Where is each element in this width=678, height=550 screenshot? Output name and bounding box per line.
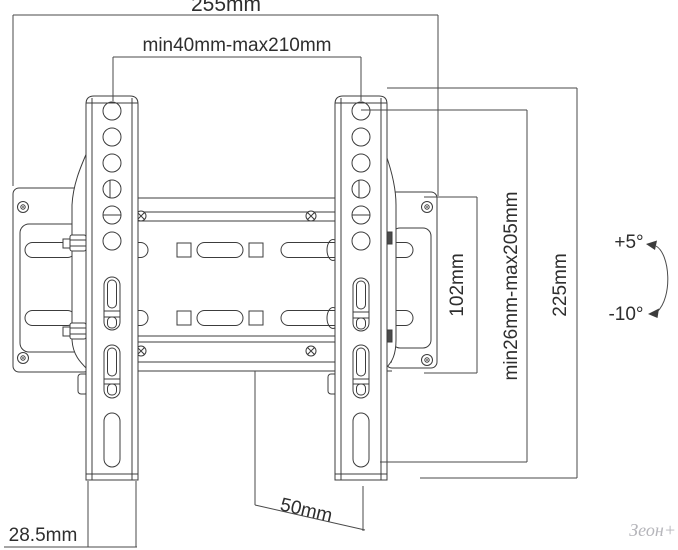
dim-hole-span-label: min40mm-max210mm	[143, 35, 332, 56]
phillips-screw	[306, 346, 316, 356]
tilt-indicator: +5° -10°	[608, 232, 667, 325]
dim-plate-height-label: 102mm	[447, 253, 468, 316]
dim-overall-width-label: 255mm	[191, 0, 261, 16]
right-bolt-tab	[387, 330, 392, 342]
wall-mount-dimension-diagram: 255mm min40mm-max210mm 102mm min26mm-max…	[0, 0, 678, 550]
dim-rail-width: 28.5mm	[4, 481, 137, 547]
plate-slot-row-lower	[112, 308, 348, 329]
plate-screws	[136, 211, 316, 356]
dim-bottom-offset-label: 50mm	[278, 494, 334, 526]
corner-screw	[422, 202, 433, 213]
mount-diagram-svg: 255mm min40mm-max210mm 102mm min26mm-max…	[0, 0, 678, 550]
right-rail	[335, 96, 387, 480]
tilt-up-label: +5°	[614, 232, 643, 253]
plate-slot-row-upper	[112, 240, 348, 261]
right-bolt-tab	[387, 232, 392, 244]
left-rail	[86, 96, 138, 480]
dim-bracket-height-label: 225mm	[550, 253, 571, 316]
watermark: Зеон+	[629, 520, 676, 540]
tilt-down-label: -10°	[608, 304, 643, 325]
phillips-screw	[306, 211, 316, 221]
corner-screw	[422, 355, 433, 366]
dim-plate-height: 102mm	[424, 197, 477, 373]
tilt-arrow-up	[646, 241, 657, 251]
dim-bracket-height: 225mm	[387, 88, 577, 478]
corner-screw	[18, 202, 29, 213]
dim-hole-span: min40mm-max210mm	[113, 35, 361, 101]
hex-bolt	[63, 235, 86, 251]
dim-rail-width-label: 28.5mm	[9, 525, 78, 546]
corner-screw	[18, 353, 29, 364]
tilt-arrow-down	[648, 309, 659, 319]
dim-vesa-height-label: min26mm-max205mm	[501, 192, 522, 381]
